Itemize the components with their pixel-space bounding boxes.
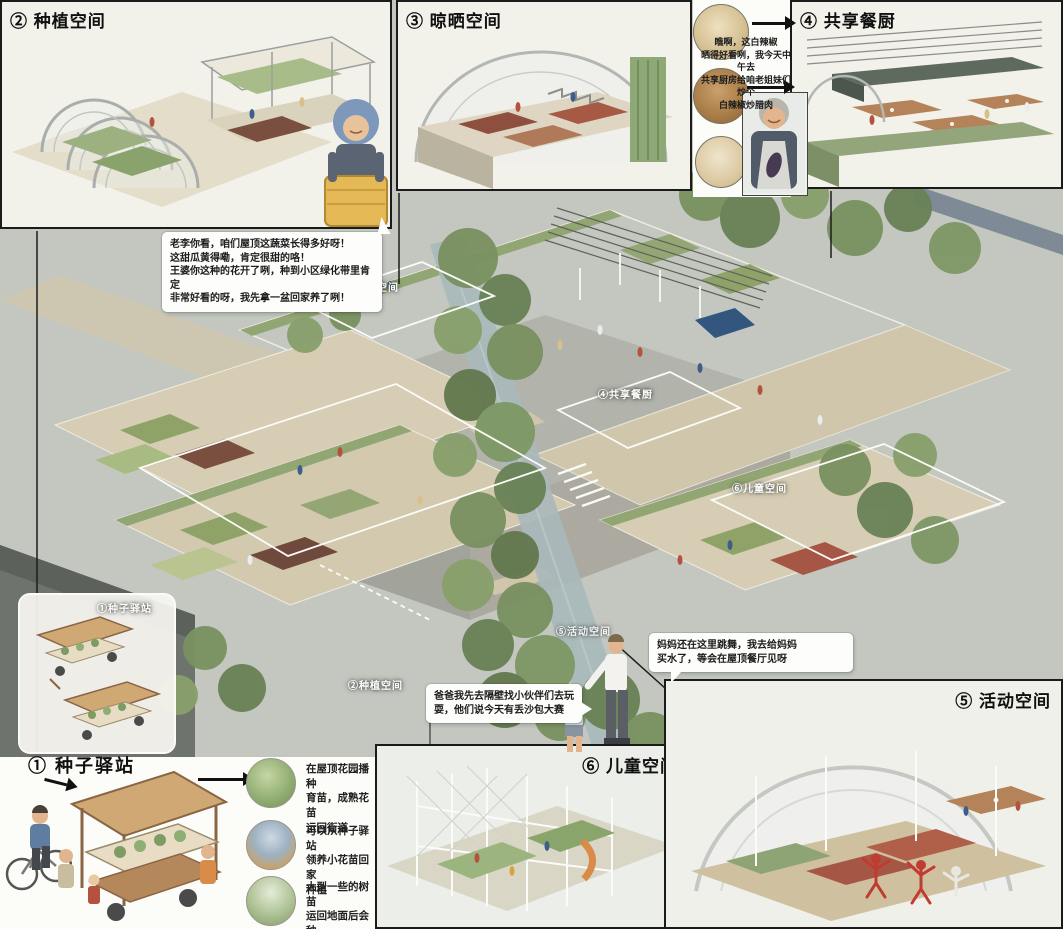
bubble-tail [671,671,682,683]
cured-meat-photo-icon [695,136,747,188]
legend-text: 大型一些的树苗 运回地面后会种 植在绿化带里 [306,876,374,929]
panel-kitchen-space: ④ 共享餐厨 [790,0,1063,189]
veggie-chat-text: 老李你看，咱们屋顶这蔬菜长得多好呀！ 这甜瓜黄得嘞，肯定很甜的咯！ 王婆你这种的… [170,239,370,304]
panel-drying-label: ③ 晾晒空间 [406,7,502,32]
presentation-board: ② 种植空间 ③ 晾晒空间 [0,0,1063,929]
panel-drying-space: ③ 晾晒空间 [396,0,692,191]
granny-basket-figure [314,94,398,232]
axon-label-planting: ②种植空间 [348,677,403,692]
arrow-right-icon [752,16,796,31]
chili-speech-text: 瞧啊，这白辣椒 晒得好看咧，我今天中午去 共享厨房给咱老姐妹们炒个 白辣椒炒腊肉 [698,36,794,112]
axon-label-children: ⑥儿童空间 [732,480,787,495]
axon-label-seed: ①种子驿站 [97,600,152,615]
dance-chat-text: 妈妈还在这里跳舞，我去给妈妈 买水了，等会在屋顶餐厅见呀 [657,640,797,665]
play-chat-text: 爸爸我先去隔壁找小伙伴们去玩 耍，他们说今天有丢沙包大赛 [434,691,574,716]
axon-label-activity: ⑤活动空间 [556,623,611,638]
panel-kitchen-label: ④ 共享餐厨 [800,7,896,32]
seedling-photo-icon [246,758,296,808]
panel-children-space: ⑥ 儿童空间 [375,744,690,929]
panel-planting-label: ② 种植空间 [10,7,106,32]
panel-activity-space: ⑤ 活动空间 [664,679,1063,929]
play-chat-bubble: 爸爸我先去隔壁找小伙伴们去玩 耍，他们说今天有丢沙包大赛 [426,684,582,723]
panel-activity-label: ⑤ 活动空间 [955,687,1051,712]
seed-station-title: ① 种子驿站 [28,752,135,778]
flower-adopt-photo-icon [246,820,296,870]
legend-item-sapling: 大型一些的树苗 运回地面后会种 植在绿化带里 [246,876,374,929]
activity-illustration [666,681,1061,927]
sapling-photo-icon [246,876,296,926]
bubble-tail [581,702,592,716]
axon-label-kitchen: ④共享餐厨 [598,386,653,401]
dance-chat-bubble: 妈妈还在这里跳舞，我去给妈妈 买水了，等会在屋顶餐厅见呀 [649,633,853,672]
seed-station-mini-panel [18,593,176,754]
veggie-chat-bubble: 老李你看，咱们屋顶这蔬菜长得多好呀！ 这甜瓜黄得嘞，肯定很甜的咯！ 王婆你这种的… [162,232,382,312]
